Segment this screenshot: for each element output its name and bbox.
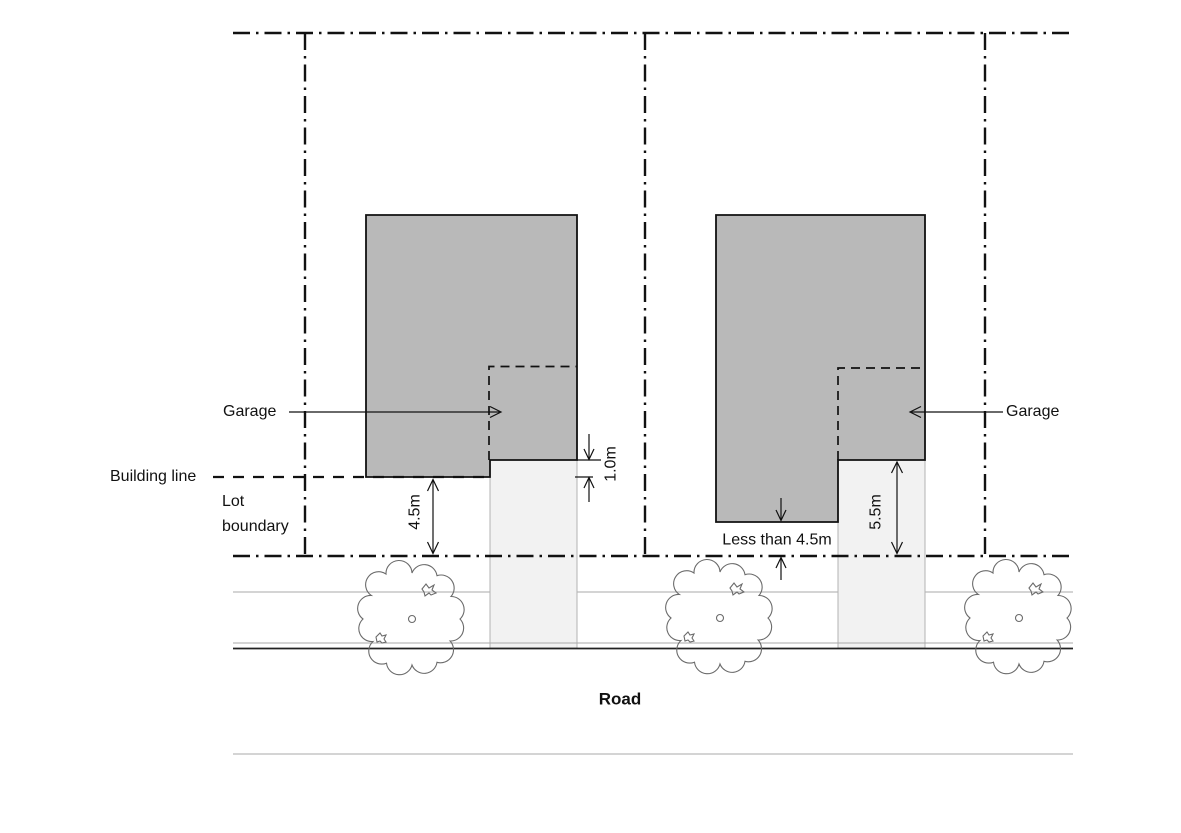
dimension-label-1-0m: 1.0m (602, 446, 621, 482)
lot-boundary-label: Lot boundary (222, 489, 304, 539)
tree-icon (358, 560, 464, 674)
road-label: Road (599, 690, 642, 709)
less-than-4-5m-label: Less than 4.5m (722, 531, 831, 550)
diagram-linework (0, 0, 1181, 833)
building-line-label: Building line (110, 467, 196, 486)
dimension-1-0m (575, 434, 601, 502)
driveway-right (838, 460, 925, 648)
tree-icon (965, 559, 1071, 673)
driveway-left (490, 460, 577, 648)
garage-label-right: Garage (1006, 402, 1059, 421)
dimension-label-4-5m: 4.5m (406, 494, 425, 530)
house-left (366, 215, 577, 477)
site-plan-diagram: Building line Lot boundary Garage Garage… (0, 0, 1181, 833)
tree-icon (666, 559, 772, 673)
dimension-label-5-5m: 5.5m (867, 494, 886, 530)
garage-label-left: Garage (223, 402, 276, 421)
dimension-4-5m (428, 480, 439, 554)
